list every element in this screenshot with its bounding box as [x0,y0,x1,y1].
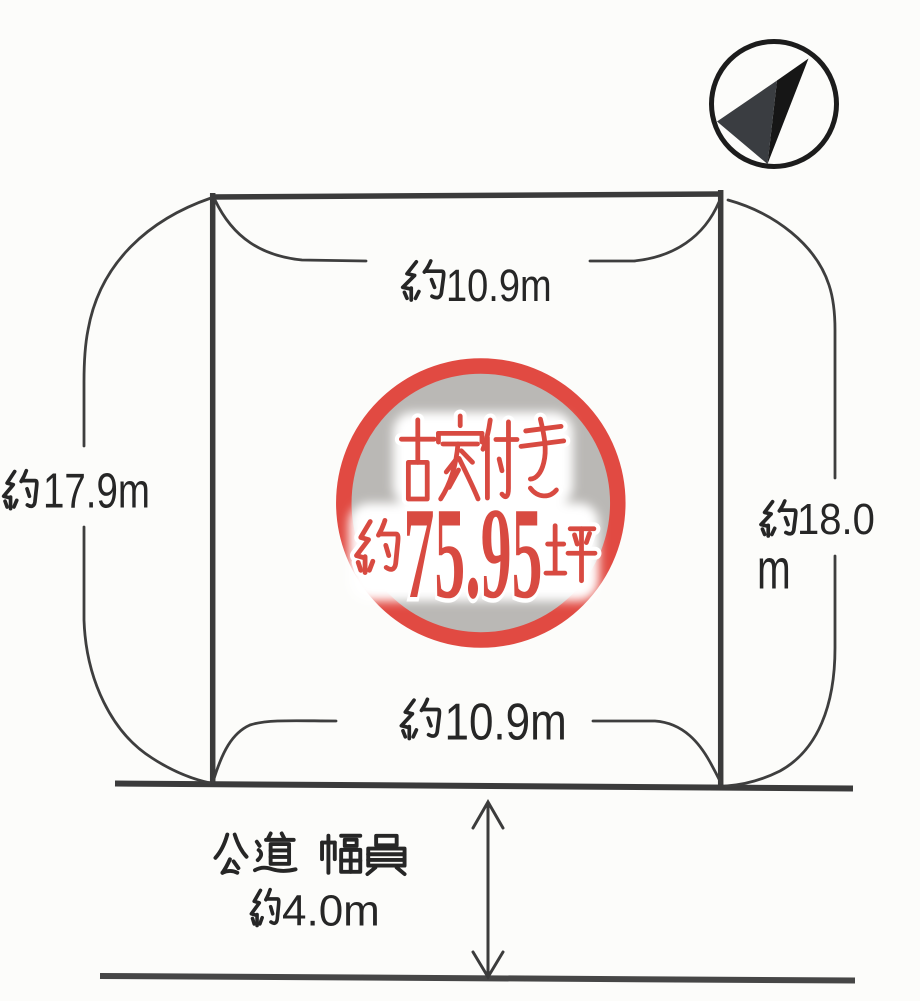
svg-text:75.95: 75.95 [404,482,543,627]
svg-text:10.9m: 10.9m [446,260,552,311]
svg-text:10.9m: 10.9m [445,693,567,751]
svg-text:m: m [757,538,791,601]
svg-text:18.0: 18.0 [797,494,875,543]
svg-text:17.9m: 17.9m [43,464,150,519]
svg-text:4.0m: 4.0m [282,887,380,936]
